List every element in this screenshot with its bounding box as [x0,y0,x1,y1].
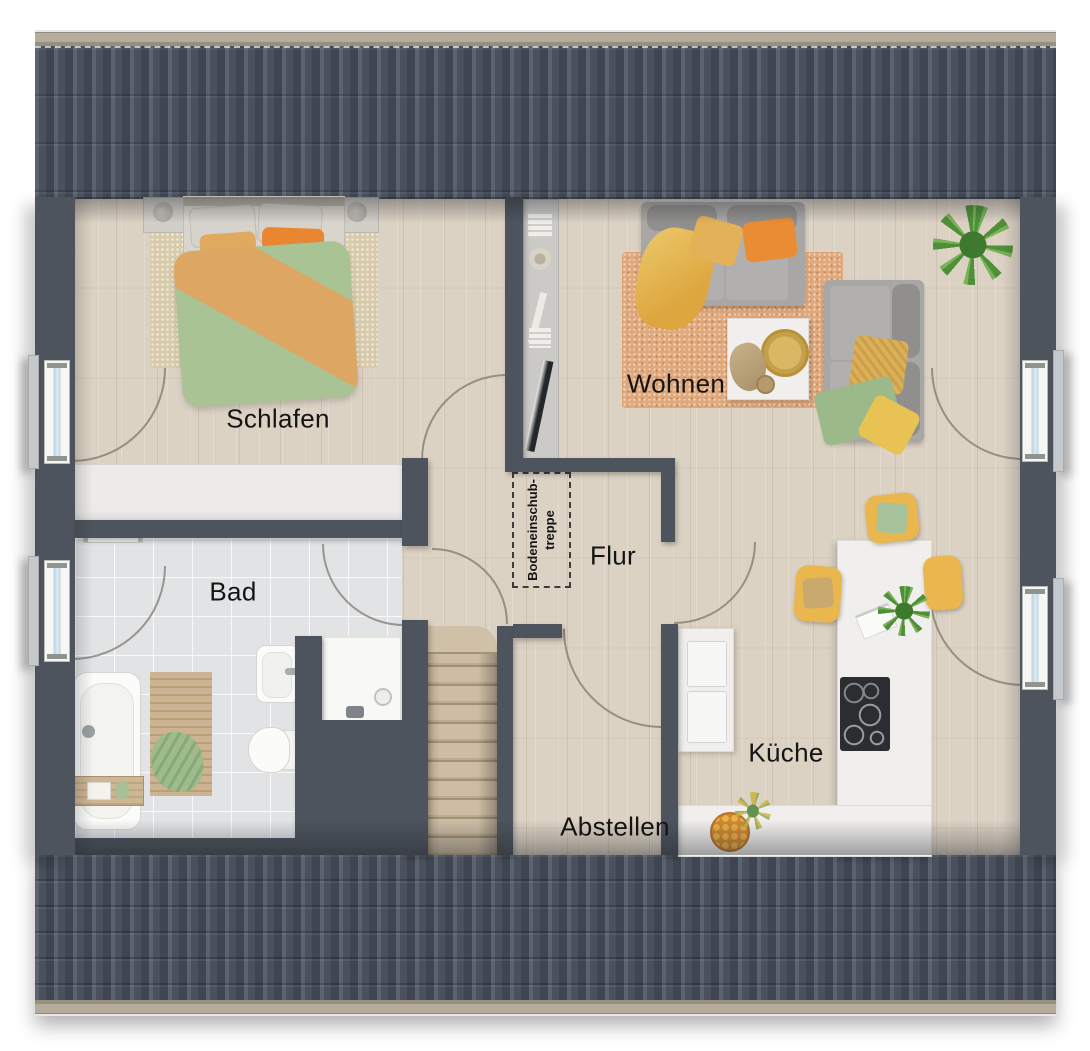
bar-stool-left [793,564,843,623]
floor-plan-canvas: Bodeneinschub- treppe Schlafen Wohnen Ba… [0,0,1090,1051]
room-label-bad: Bad [209,577,256,608]
shutter-rail [1053,350,1064,472]
plant-icon [878,586,930,636]
window-glass [54,365,61,459]
toilet [248,727,298,771]
gold-tray-icon [761,329,809,377]
bath-faucet-icon [82,725,95,738]
stool-cushion-tan [802,577,834,609]
shutter-rail [28,556,39,666]
fridge-compartment [687,641,727,687]
room-label-wohnen: Wohnen [627,369,725,400]
window-glass [1032,365,1039,457]
roof-band-bottom [35,855,1056,1016]
roof-eave-trim [35,1000,1056,1016]
bed-duvet [173,240,359,408]
tv-shelf-unit [523,199,559,459]
wall-storage-north [513,624,562,638]
roof-band-top [35,30,1056,197]
attic-hatch-outline: Bodeneinschub- treppe [512,472,571,588]
tv-icon [525,360,554,452]
basket-icon [529,248,551,270]
soap-icon [115,781,129,799]
wall-exterior-right [1020,197,1056,855]
roof-corrugation [35,46,1056,199]
window-cap [1025,363,1045,368]
books-stack-icon [528,214,552,238]
flowers-icon [735,792,771,830]
cooktop [840,677,890,751]
wall-bath-east-lower [402,620,428,855]
stool-cushion-green [876,502,908,534]
wall-hall-east [661,470,675,542]
window-lower-right [1022,586,1048,690]
window-cap [47,363,67,368]
bathtub-tray [70,776,144,806]
attic-hatch-label-line1: Bodeneinschub- [525,472,542,588]
book-on-tray-icon [87,782,111,800]
room-label-schlafen: Schlafen [226,404,330,435]
coffee-table [727,318,809,400]
room-label-kueche: Küche [748,738,823,769]
wall-bedroom-south [75,520,403,538]
window-cap [47,456,67,461]
nightstand-lamp-right [347,202,367,222]
toilet-bowl [248,727,290,773]
window-cap [47,654,67,659]
duvet-orange-band [173,240,359,391]
window-upper-right [1022,360,1048,462]
roof-corrugation [35,855,1056,1002]
stair-winder-step [428,626,497,654]
attic-hatch-label: Bodeneinschub- treppe [525,472,559,588]
window-cap [47,563,67,568]
roof-ridge-trim [35,30,1056,46]
window-upper-left [44,360,70,464]
wall-sink-stub [295,636,322,840]
shower-drain-icon [374,688,392,706]
shutter-rail [1053,578,1064,700]
wall-bedroom-living-divider [505,197,523,459]
staircase [428,648,497,855]
sink [256,645,300,703]
shower-fixture-icon [346,706,364,718]
nightstand-lamp-left [153,202,173,222]
window-glass [54,565,61,657]
window-cap [1025,682,1045,687]
window-cap [1025,454,1045,459]
fridge-cabinet [678,628,734,752]
plant-icon [933,205,1013,285]
books-stack-icon [529,328,551,348]
bar-stool-top [864,491,921,544]
sink-basin [262,652,292,698]
wall-exterior-left [35,197,75,855]
wall-bath-east-upper [402,458,428,546]
wall-stairs-right [497,626,513,855]
room-label-flur: Flur [590,541,636,572]
window-lower-left [44,560,70,662]
window-cap [1025,589,1045,594]
vase-icon [756,375,775,394]
wall-bath-south [75,838,403,855]
wardrobe [72,464,405,522]
wall-shower-void [322,720,402,840]
fridge-compartment [687,691,727,743]
room-label-abstellen: Abstellen [560,812,670,843]
bathtub [73,672,141,830]
wall-hall-north [505,458,675,472]
attic-hatch-label-line2: treppe [542,472,559,588]
pillow-orange [742,217,798,263]
shutter-rail [28,355,39,469]
window-glass [1032,591,1039,685]
shower [322,636,402,722]
